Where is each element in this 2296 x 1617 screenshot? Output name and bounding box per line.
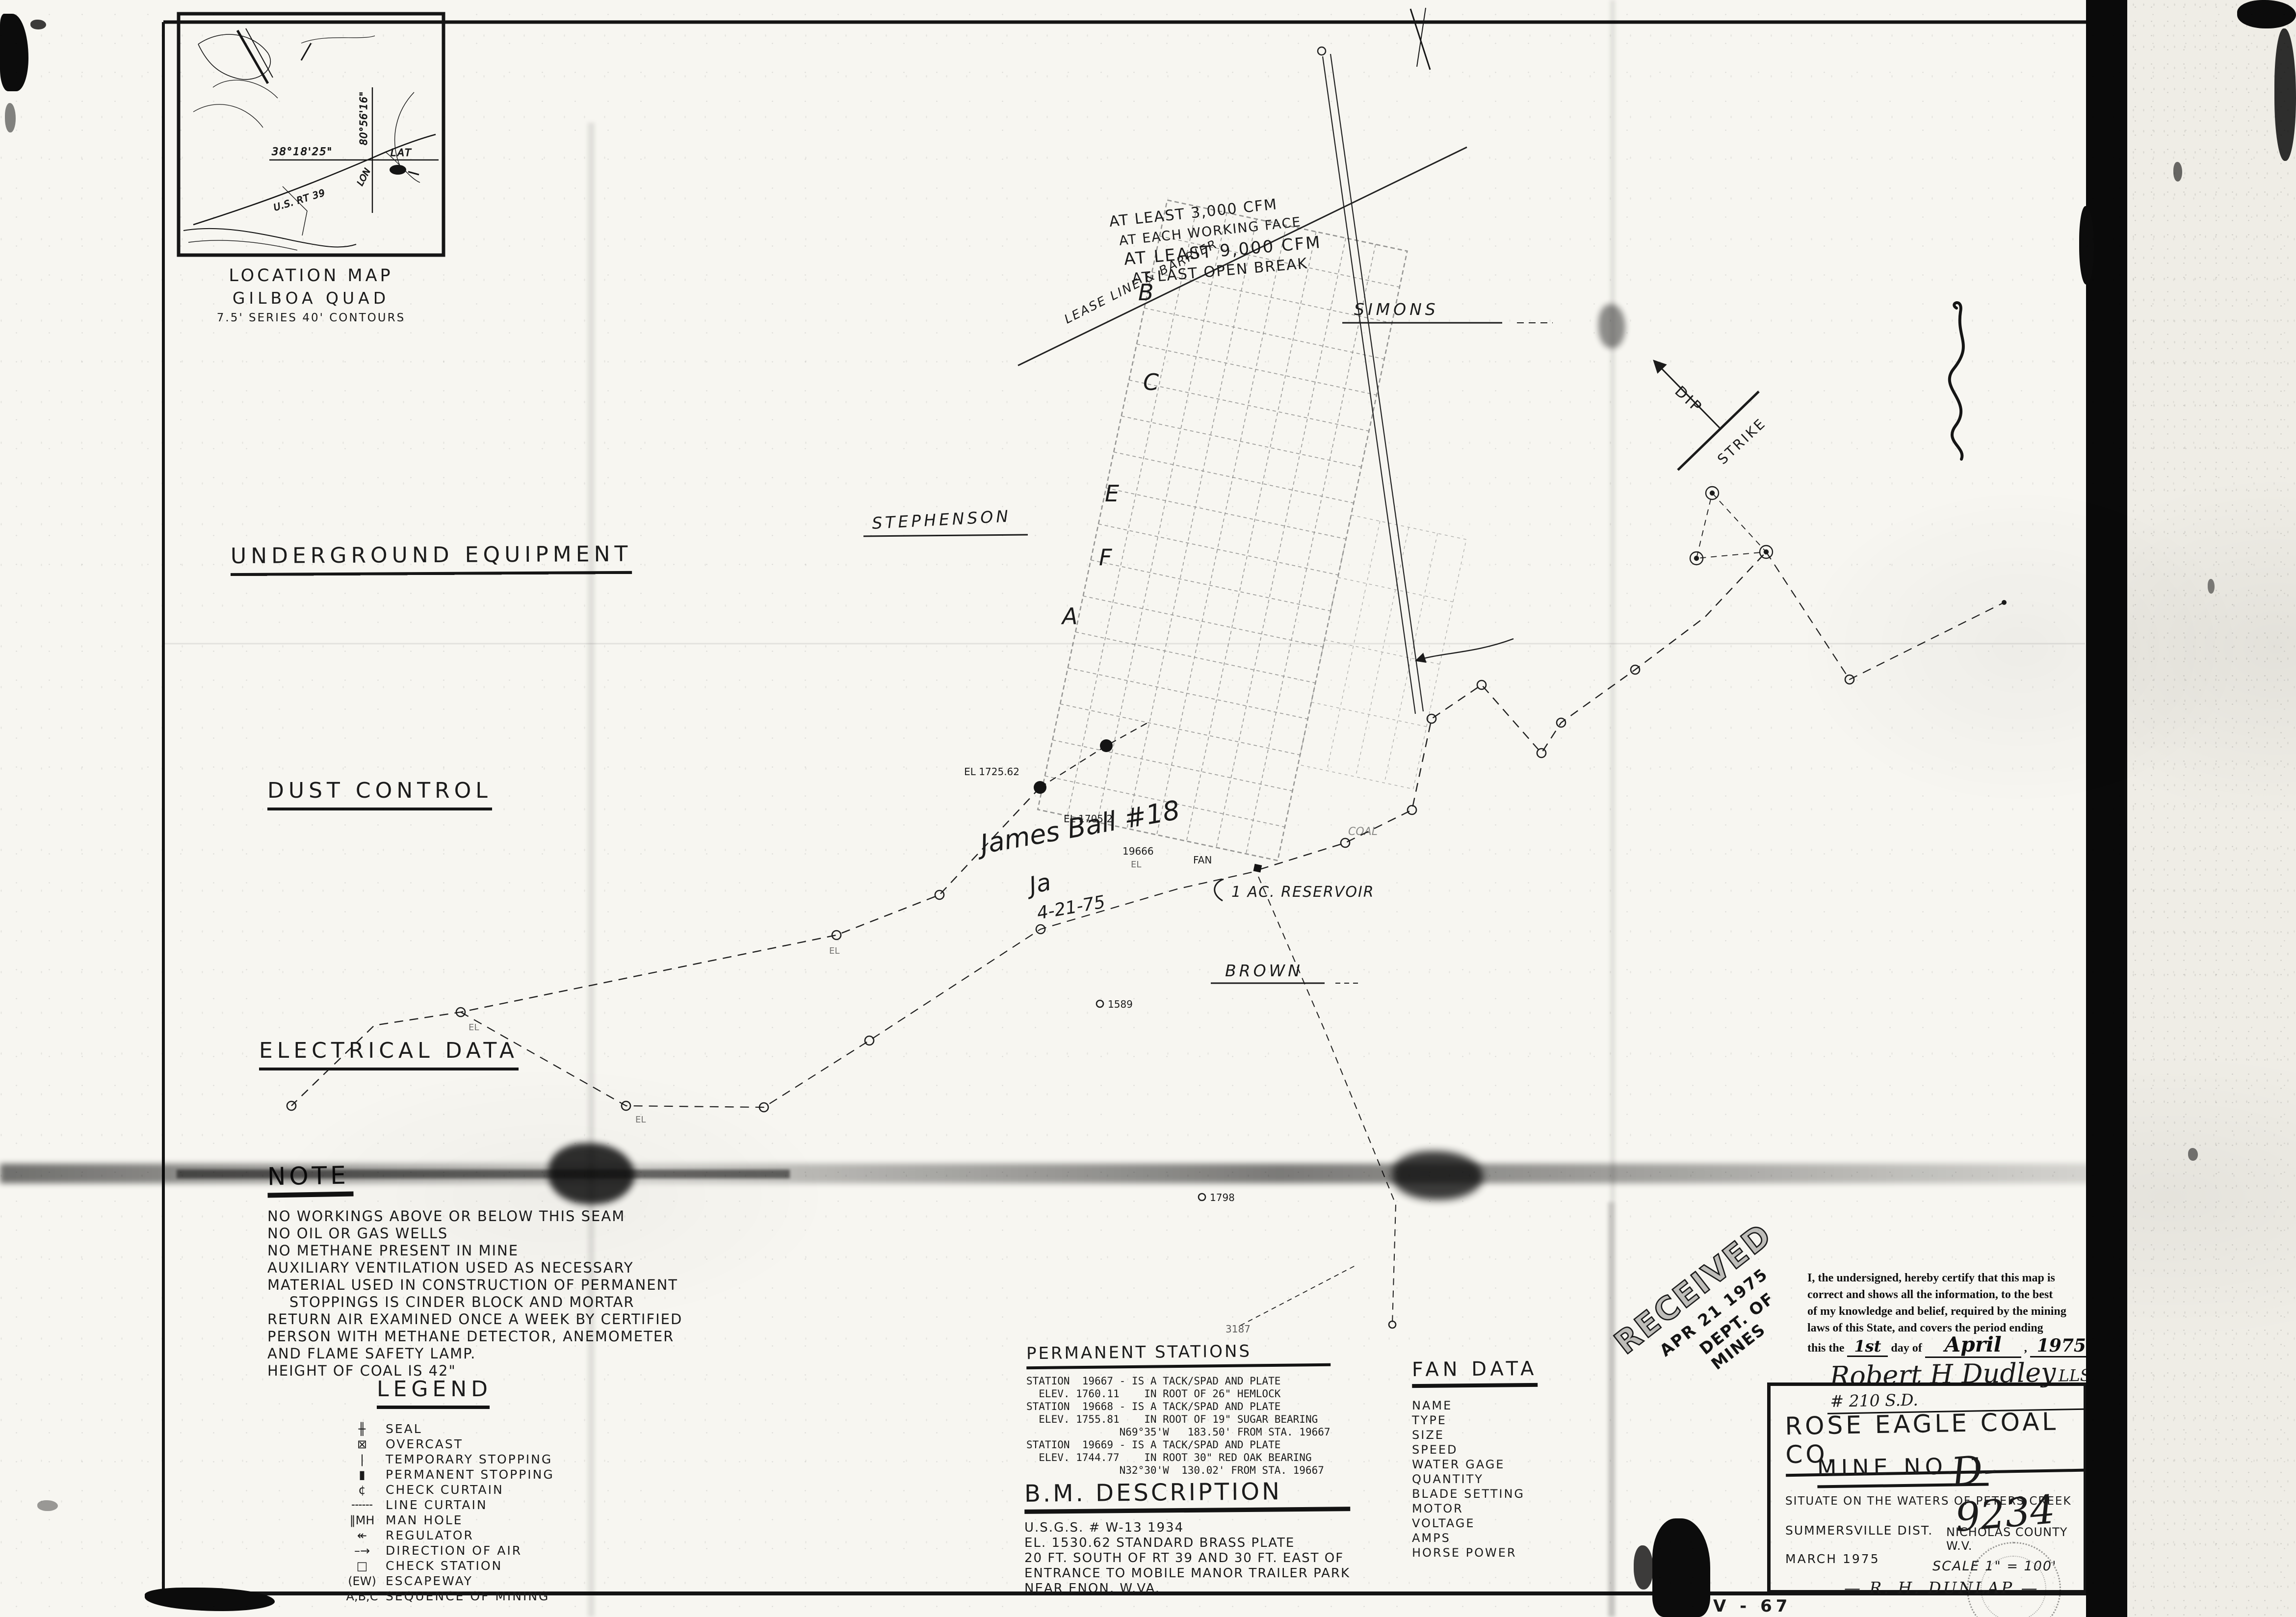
el-1725-label: EL 1725.62	[964, 766, 1019, 778]
certification-line: I, the undersigned, hereby certify that …	[1807, 1270, 2102, 1286]
el-small-4: EL	[469, 1022, 479, 1033]
legend-symbol: ¢	[339, 1483, 386, 1497]
speck-right-1	[2173, 162, 2182, 182]
heading-dust-control: DUST CONTROL	[267, 778, 492, 810]
fold-streak-left	[588, 123, 595, 1617]
coal-label: COAL	[1348, 826, 1378, 838]
corner-mark-top-right-1	[2237, 0, 2296, 28]
bm-lines: U.S.G.S. # W-13 1934EL. 1530.62 STANDARD…	[1024, 1520, 1350, 1596]
station-line: N32°30'W 130.02' FROM STA. 19667	[1026, 1464, 1331, 1477]
bm-line: NEAR ENON, W.VA.	[1024, 1581, 1350, 1596]
legend-title: LEGEND	[377, 1377, 490, 1409]
spad-dot-2	[1100, 739, 1113, 752]
inset-lon-value: 80°56'16"	[358, 91, 369, 145]
brown-label: BROWN	[1225, 961, 1303, 980]
legend-item: (EW) ESCAPEWAY	[339, 1574, 554, 1589]
fan-data-fields: NAMETYPESIZESPEEDWATER GAGEQUANTITYBLADE…	[1412, 1398, 1538, 1560]
corner-mark-top-left-2	[30, 20, 46, 29]
dip-strike-symbol: DIP STRIKE	[1655, 362, 1769, 470]
inset-border	[179, 14, 444, 255]
fold-streak-right-upper	[1610, 0, 1615, 1202]
legend-label: SEAL	[386, 1422, 422, 1436]
station-line: STATION 19669 - IS A TACK/SPAD AND PLATE	[1026, 1438, 1331, 1451]
bm-description-section: B.M. DESCRIPTION U.S.G.S. # W-13 1934EL.…	[1024, 1479, 1350, 1596]
el-small-1: EL	[1131, 860, 1141, 870]
reservoir: 1 AC. RESERVOIR	[1215, 879, 1375, 901]
legend-symbol: ⊠	[339, 1437, 386, 1451]
speck-bottom-left	[37, 1500, 58, 1511]
note-lines: NO WORKINGS ABOVE OR BELOW THIS SEAMNO O…	[267, 1208, 682, 1380]
note-line: AUXILIARY VENTILATION USED AS NECESSARY	[267, 1259, 682, 1277]
fold-smudge-dark-segment	[177, 1170, 790, 1178]
num-3187-label: 3187	[1226, 1323, 1251, 1335]
permanent-stations-title: PERMANENT STATIONS	[1026, 1341, 1331, 1369]
legend-item: A,B,C SEQUENCE OF MINING	[339, 1589, 554, 1604]
cert-year: 1975	[2030, 1335, 2093, 1357]
legend-symbol: ╌╌╌	[339, 1498, 386, 1512]
note-line: NO WORKINGS ABOVE OR BELOW THIS SEAM	[267, 1208, 682, 1225]
hand-initials: Ja	[1023, 868, 1053, 901]
district: SUMMERSVILLE DIST.	[1785, 1523, 1933, 1538]
triangulation-stations	[1690, 487, 1773, 565]
handwritten-note: James Ball #18 Ja 4-21-75	[973, 794, 1182, 924]
legend-label: DIRECTION OF AIR	[386, 1543, 522, 1558]
legend-symbol: ▮	[339, 1468, 386, 1482]
note-line: NO OIL OR GAS WELLS	[267, 1225, 682, 1242]
station-line: ELEV. 1760.11 IN ROOT OF 26" HEMLOCK	[1026, 1387, 1331, 1400]
note-line: PERSON WITH METHANE DETECTOR, ANEMOMETER	[267, 1328, 682, 1345]
legend-label: TEMPORARY STOPPING	[386, 1452, 552, 1466]
sheet-number: V - 67	[1713, 1596, 1791, 1616]
stephenson-label: STEPHENSON	[871, 506, 1011, 533]
seq-letter-e: E	[1105, 480, 1119, 507]
legend-label: MAN HOLE	[386, 1513, 463, 1527]
lease-line	[1018, 47, 1467, 714]
annotation-arrow	[1417, 639, 1513, 660]
fan-label: FAN	[1193, 854, 1212, 866]
fan-data-field: NAME	[1412, 1398, 1538, 1413]
inset-route-label: U.S. RT 39	[272, 187, 327, 213]
ink-blot-center	[1392, 1151, 1483, 1200]
legend-symbol: (EW)	[339, 1574, 386, 1588]
station-line: STATION 19668 - IS A TACK/SPAD AND PLATE	[1026, 1400, 1331, 1413]
inset-caption-line1: LOCATION MAP	[179, 266, 444, 286]
heading-underground-equipment: UNDERGROUND EQUIPMENT	[231, 542, 632, 576]
el-small-3: EL	[635, 1115, 646, 1125]
legend-item: ¢ CHECK CURTAIN	[339, 1483, 554, 1498]
permanent-stations-section: PERMANENT STATIONS STATION 19667 - IS A …	[1026, 1342, 1331, 1477]
note-line: NO METHANE PRESENT IN MINE	[267, 1242, 682, 1259]
cert-prefix: this the	[1807, 1342, 1844, 1355]
legend-symbol: |	[339, 1453, 386, 1466]
legend-label: CHECK CURTAIN	[386, 1483, 504, 1497]
speck-right-3	[2188, 1148, 2198, 1161]
seq-letter-b: B	[1138, 279, 1154, 306]
fan-data-field: BLADE SETTING	[1412, 1487, 1538, 1501]
leader-line-3187	[1240, 1266, 1355, 1326]
station-line: ELEV. 1755.81 IN ROOT OF 19" SUGAR BEARI…	[1026, 1413, 1331, 1426]
strike-label: STRIKE	[1714, 415, 1769, 468]
ink-blot-bottom-center-2	[1634, 1545, 1653, 1590]
ink-blot-bottom-center	[1652, 1518, 1710, 1617]
fan-data-field: AMPS	[1412, 1531, 1538, 1545]
certification-line: of my knowledge and belief, required by …	[1807, 1303, 2102, 1320]
legend-symbol: ╫	[339, 1422, 386, 1436]
legend-label: REGULATOR	[386, 1528, 474, 1542]
note-line: RETURN AIR EXAMINED ONCE A WEEK BY CERTI…	[267, 1311, 682, 1328]
fan-data-title: FAN DATA	[1412, 1357, 1538, 1388]
legend-label: ESCAPEWAY	[386, 1574, 473, 1588]
fan-data-field: HORSE POWER	[1412, 1545, 1538, 1560]
legend-label: SEQUENCE OF MINING	[386, 1589, 549, 1603]
mine-portal	[1253, 864, 1262, 873]
cert-month: April	[1925, 1332, 2021, 1358]
corner-mark-top-left-3	[5, 103, 16, 132]
note-line: AND FLAME SAFETY LAMP.	[267, 1345, 682, 1362]
station-line: N69°35'W 183.50' FROM STA. 19667	[1026, 1426, 1331, 1438]
legend-symbol: ‖MH	[339, 1513, 386, 1527]
fan-data-field: SIZE	[1412, 1428, 1538, 1442]
fan-data-field: VOLTAGE	[1412, 1516, 1538, 1531]
scan-right-margin	[2127, 0, 2296, 1617]
cert-comma: ,	[2024, 1342, 2027, 1355]
legend-item: ⊠ OVERCAST	[339, 1437, 554, 1452]
bm-title: B.M. DESCRIPTION	[1024, 1477, 1351, 1514]
speck-right-2	[2208, 579, 2215, 594]
dip-label: DIP	[1671, 383, 1706, 417]
cert-day: 1st	[1847, 1337, 1888, 1357]
inset-mine-location-dot	[390, 165, 406, 175]
legend-item: –→ DIRECTION OF AIR	[339, 1543, 554, 1559]
pt-1798-label: 1798	[1210, 1192, 1235, 1203]
legend-symbol: –→	[339, 1544, 386, 1558]
inset-caption-line3: 7.5' SERIES 40' CONTOURS	[179, 312, 444, 324]
inset-lat-value: 38°18'25"	[272, 146, 333, 157]
title-block: ROSE EAGLE COAL CO. MINE NO. 1 D-9234 SI…	[1767, 1382, 2087, 1593]
el-small-2: EL	[829, 946, 839, 956]
seq-letter-a: A	[1061, 603, 1077, 629]
legend-item: ‖MH MAN HOLE	[339, 1513, 554, 1528]
fan-data-field: SPEED	[1412, 1442, 1538, 1457]
bm-line: ENTRANCE TO MOBILE MANOR TRAILER PARK	[1024, 1566, 1350, 1581]
pen-squiggle-mark	[1950, 303, 1963, 459]
legend-item: ↞ REGULATOR	[339, 1528, 554, 1543]
pt-1589-label: 1589	[1108, 998, 1133, 1010]
location-map-inset: 38°18'25" LAT 80°56'16" LON U.S. RT 39	[179, 14, 444, 255]
legend-symbol: A,B,C	[339, 1590, 386, 1603]
certification-lines: I, the undersigned, hereby certify that …	[1807, 1270, 2102, 1336]
fan-data-field: WATER GAGE	[1412, 1457, 1538, 1472]
certification-line: correct and shows all the information, t…	[1807, 1286, 2102, 1303]
bm-line: EL. 1530.62 STANDARD BRASS PLATE	[1024, 1536, 1350, 1551]
legend-item: | TEMPORARY STOPPING	[339, 1452, 554, 1467]
station-line: ELEV. 1744.77 IN ROOT 30" RED OAK BEARIN…	[1026, 1451, 1331, 1464]
property-names: SIMONS STEPHENSON BROWN	[863, 300, 1553, 983]
bm-line: U.S.G.S. # W-13 1934	[1024, 1520, 1350, 1536]
permanent-stations-lines: STATION 19667 - IS A TACK/SPAD AND PLATE…	[1026, 1375, 1331, 1477]
inset-caption-line2: GILBOA QUAD	[179, 288, 444, 308]
legend-section: LEGEND ╫ SEAL ⊠ OVERCAST | TEMPORARY STO…	[339, 1377, 554, 1604]
legend-item: ╌╌╌ LINE CURTAIN	[339, 1498, 554, 1513]
bm-line: 20 FT. SOUTH OF RT 39 AND 30 FT. EAST OF	[1024, 1551, 1350, 1566]
legend-symbol: ↞	[339, 1529, 386, 1542]
legend-label: LINE CURTAIN	[386, 1498, 488, 1512]
scan-squiggles-top	[1410, 8, 1430, 70]
certification-date-line: this the 1st day of April , 1975 .	[1807, 1336, 2102, 1356]
simons-label: SIMONS	[1354, 300, 1439, 319]
station-line: STATION 19667 - IS A TACK/SPAD AND PLATE	[1026, 1375, 1331, 1387]
legend-label: CHECK STATION	[386, 1559, 502, 1573]
cert-mid: day of	[1891, 1342, 1922, 1355]
legend-label: PERMANENT STOPPING	[386, 1467, 554, 1482]
fan-data-field: QUANTITY	[1412, 1472, 1538, 1487]
legend-symbol: □	[339, 1559, 386, 1573]
seq-letter-c: C	[1143, 369, 1159, 395]
sequence-letters: B C E F A	[1061, 279, 1159, 629]
fan-data-section: FAN DATA NAMETYPESIZESPEEDWATER GAGEQUAN…	[1412, 1358, 1538, 1560]
smudge-right-upper	[1598, 304, 1625, 348]
inset-caption: LOCATION MAP GILBOA QUAD 7.5' SERIES 40'…	[179, 266, 444, 324]
fan-data-field: TYPE	[1412, 1413, 1538, 1428]
reservoir-label: 1 AC. RESERVOIR	[1231, 884, 1375, 901]
spad-dot-1	[1034, 781, 1046, 794]
situate-line: SITUATE ON THE WATERS OF PETERS CREEK	[1785, 1495, 2072, 1508]
notary-seal-inner	[1981, 1556, 2046, 1617]
inset-lon-word: LON	[355, 167, 373, 188]
heading-electrical-data: ELECTRICAL DATA	[259, 1038, 519, 1070]
fold-streak-right-lower	[1608, 1202, 1615, 1617]
legend-items: ╫ SEAL ⊠ OVERCAST | TEMPORARY STOPPING ▮…	[339, 1422, 554, 1604]
legend-item: □ CHECK STATION	[339, 1559, 554, 1574]
mine-map-sheet: 38°18'25" LAT 80°56'16" LON U.S. RT 39	[0, 0, 2296, 1617]
note-line: STOPPINGS IS CINDER BLOCK AND MORTAR	[267, 1294, 682, 1311]
seq-letter-f: F	[1099, 544, 1112, 571]
inset-lat-word: LAT	[391, 147, 413, 158]
note-line: MATERIAL USED IN CONSTRUCTION OF PERMANE…	[267, 1277, 682, 1294]
sta-19666-label: 19666	[1122, 845, 1154, 857]
legend-item: ╫ SEAL	[339, 1422, 554, 1437]
fan-data-field: MOTOR	[1412, 1501, 1538, 1516]
legend-label: OVERCAST	[386, 1437, 463, 1451]
legend-item: ▮ PERMANENT STOPPING	[339, 1467, 554, 1483]
map-date: MARCH 1975	[1785, 1552, 1880, 1566]
